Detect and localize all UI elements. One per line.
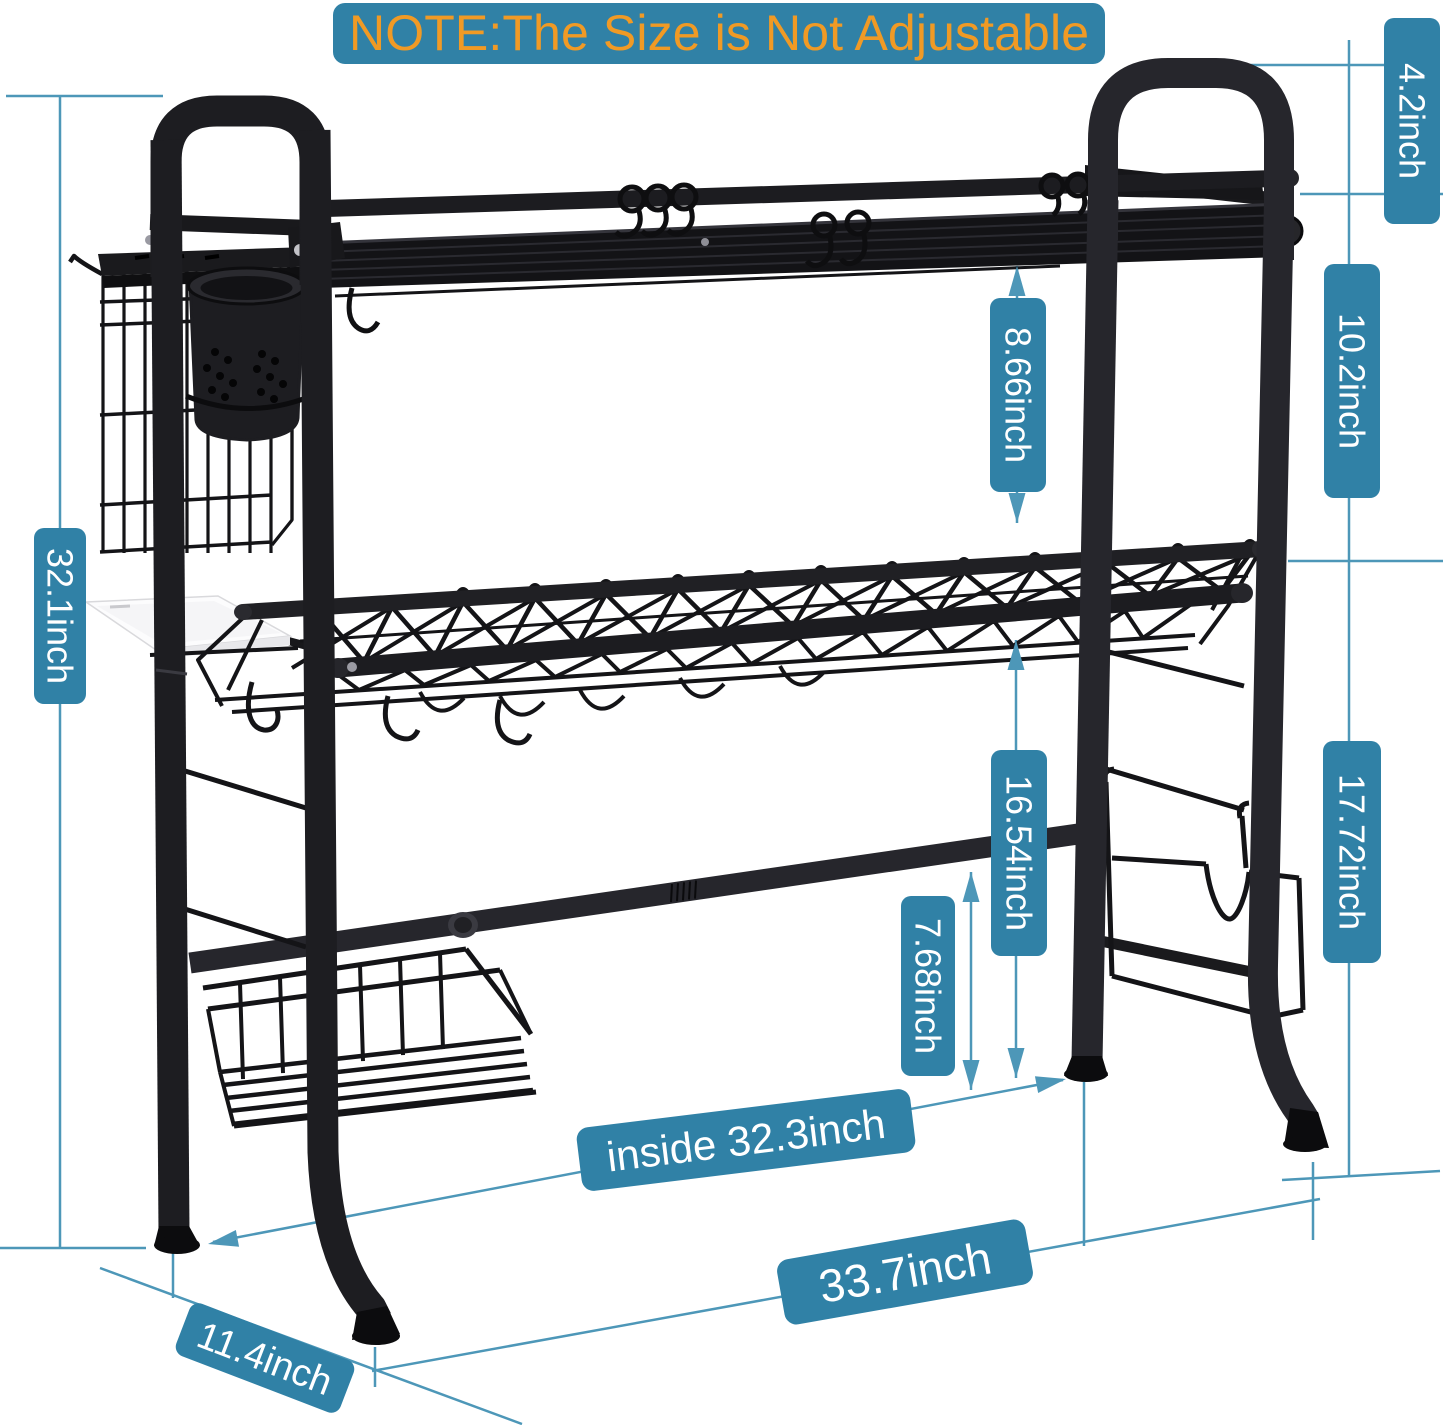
svg-text:NOTE:The Size is Not Adjustabl: NOTE:The Size is Not Adjustable — [349, 5, 1089, 61]
svg-text:32.1inch: 32.1inch — [39, 548, 80, 684]
svg-text:7.68inch: 7.68inch — [907, 918, 948, 1054]
svg-text:10.2inch: 10.2inch — [1331, 313, 1372, 449]
svg-text:17.72inch: 17.72inch — [1331, 774, 1372, 930]
svg-text:16.54inch: 16.54inch — [998, 775, 1039, 931]
svg-text:4.2inch: 4.2inch — [1391, 63, 1432, 179]
svg-text:8.66inch: 8.66inch — [997, 327, 1038, 463]
